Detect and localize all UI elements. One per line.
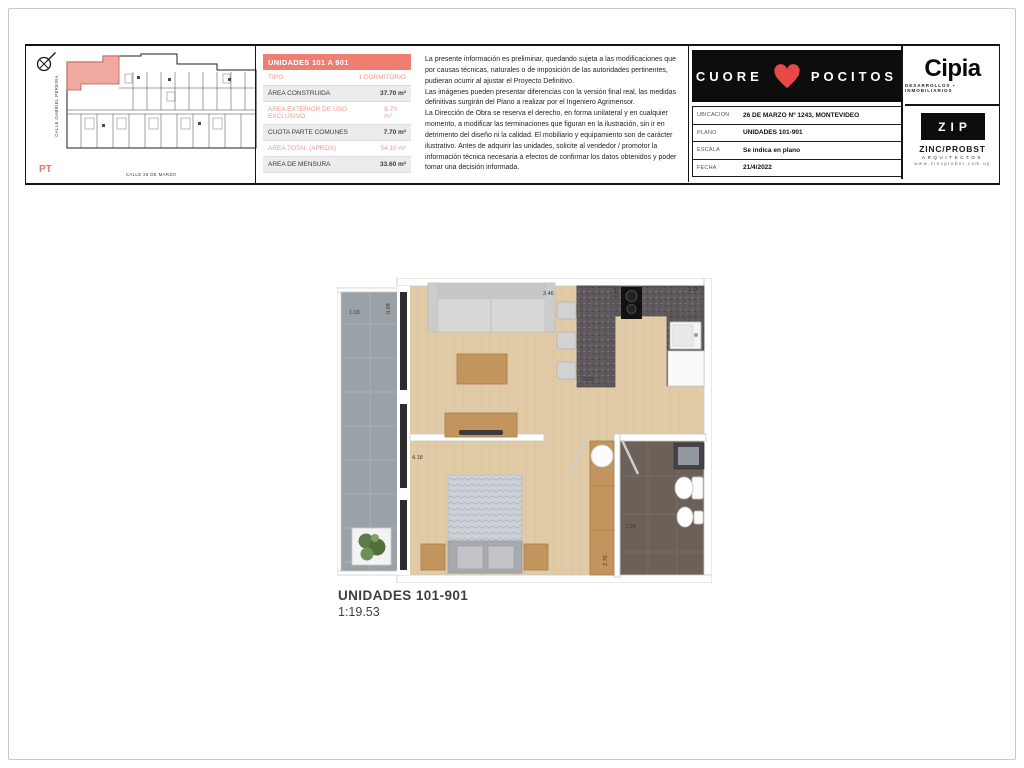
level-label: PT [39, 164, 52, 175]
street-label-bottom: CALLE 26 DE MARZO [126, 172, 177, 177]
cooktop [621, 287, 642, 319]
legal-disclaimer: La presente información es preliminar, q… [425, 55, 688, 174]
developer-logo: Cipia DESARROLLOS ▪ INMOBILIARIOS [905, 46, 1000, 106]
sofa [428, 283, 555, 332]
field-row: FECHA 21/4/2022 [693, 160, 902, 178]
plan-caption-scale: 1:19.53 [338, 605, 468, 619]
tv [459, 430, 503, 435]
heart-icon [772, 63, 802, 90]
window-frames [400, 292, 407, 570]
keyplan-divider [255, 46, 256, 183]
svg-text:3.46: 3.46 [543, 291, 554, 297]
project-logo: CUORE POCITOS [692, 50, 901, 102]
unit-data-table: UNIDADES 101 A 901 TIPO 1 DORMITORIO ÁRE… [263, 54, 411, 173]
svg-text:4.18: 4.18 [412, 455, 423, 461]
svg-text:2.70: 2.70 [603, 555, 609, 566]
stool [591, 445, 613, 467]
svg-text:0.90: 0.90 [583, 377, 594, 383]
planter [352, 528, 391, 565]
field-row: ESCALA Se indica en plano [693, 142, 902, 160]
architect-logo: ZIP ZINC/PROBST ARQUITECTOS www.zincprob… [905, 106, 1000, 166]
field-row: UBICACION 26 DE MARZO Nº 1243, MONTEVIDE… [693, 107, 902, 125]
plan-caption: UNIDADES 101-901 1:19.53 [338, 588, 468, 619]
table-row: CUOTA PARTE COMUNES 7.70 m² [263, 125, 411, 141]
svg-text:1.34: 1.34 [625, 524, 636, 530]
toilet [675, 477, 703, 499]
title-block: CUORE POCITOS UBICACION 26 DE MARZO Nº 1… [688, 46, 1000, 182]
title-band: CALLE GABRIEL PEREIRA [25, 44, 1000, 185]
sink [670, 322, 701, 349]
kitchen-cabinet [668, 351, 704, 386]
bar-stools [557, 302, 576, 379]
floor-plan-render: 1.03 0.98 3.46 2.98 2.15 0.90 4.18 2.70 … [337, 278, 712, 583]
svg-text:2.98: 2.98 [614, 287, 620, 298]
brand-word-left: CUORE [696, 69, 763, 84]
table-row: AREA TOTAL (APROX) 54.10 m² [263, 141, 411, 157]
table-row: TIPO 1 DORMITORIO [263, 70, 411, 86]
table-row: AREA DE MENSURA 33.60 m² [263, 157, 411, 173]
key-plan: CALLE GABRIEL PEREIRA [31, 48, 259, 180]
svg-text:2.15: 2.15 [688, 287, 699, 293]
wardrobe [590, 441, 614, 575]
plan-caption-title: UNIDADES 101-901 [338, 588, 468, 603]
zip-logo-box: ZIP [921, 113, 985, 140]
north-arrow-icon [38, 53, 56, 71]
brand-word-right: POCITOS [811, 69, 897, 84]
svg-text:0.98: 0.98 [386, 303, 392, 314]
titleblock-fields: UBICACION 26 DE MARZO Nº 1243, MONTEVIDE… [692, 106, 903, 177]
building-outline [67, 54, 256, 148]
svg-text:1.03: 1.03 [349, 310, 360, 316]
table-row: ÁREA CONSTRUIDA 37.70 m² [263, 86, 411, 102]
bed [448, 475, 522, 573]
dining-table [457, 354, 507, 384]
titleblock-divider [901, 46, 903, 179]
field-row: PLANO UNIDADES 101-901 [693, 125, 902, 143]
table-row: AREA EXTERIOR DE USO EXCLUSIVO 8.70 m² [263, 102, 411, 125]
unit-table-title: UNIDADES 101 A 901 [263, 54, 411, 70]
tv-console [445, 413, 517, 437]
bathroom-fixtures [674, 443, 704, 527]
street-label-left: CALLE GABRIEL PEREIRA [54, 75, 59, 137]
